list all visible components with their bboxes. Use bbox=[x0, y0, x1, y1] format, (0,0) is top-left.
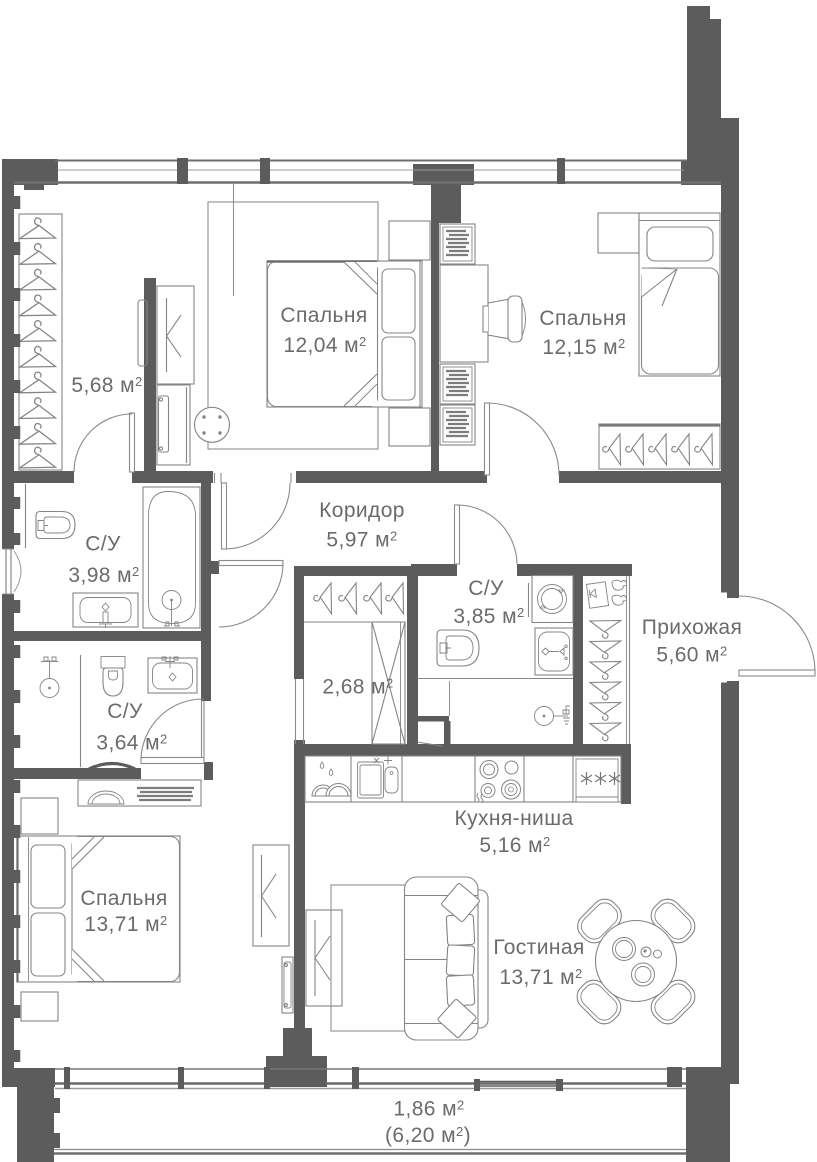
svg-text:Спальня: Спальня bbox=[539, 307, 626, 330]
svg-text:5,60 м2: 5,60 м2 bbox=[656, 644, 727, 667]
svg-text:5,16 м2: 5,16 м2 bbox=[479, 834, 550, 857]
svg-text:С/У: С/У bbox=[468, 577, 504, 600]
svg-text:Прихожая: Прихожая bbox=[642, 616, 743, 639]
svg-text:5,97 м2: 5,97 м2 bbox=[326, 529, 397, 552]
svg-text:2,68 м2: 2,68 м2 bbox=[322, 676, 393, 699]
svg-text:12,04 м2: 12,04 м2 bbox=[283, 334, 366, 357]
svg-text:Гостиная: Гостиная bbox=[493, 936, 584, 959]
svg-text:3,85 м2: 3,85 м2 bbox=[453, 605, 524, 628]
svg-text:5,68 м2: 5,68 м2 bbox=[71, 374, 142, 397]
svg-text:13,71 м2: 13,71 м2 bbox=[84, 913, 167, 936]
svg-text:Коридор: Коридор bbox=[319, 499, 405, 522]
svg-text:С/У: С/У bbox=[85, 533, 121, 556]
svg-text:3,64 м2: 3,64 м2 bbox=[96, 732, 167, 755]
svg-text:С/У: С/У bbox=[107, 700, 143, 723]
svg-text:Кухня-ниша: Кухня-ниша bbox=[454, 807, 573, 830]
svg-text:1,86 м2: 1,86 м2 bbox=[393, 1098, 464, 1121]
svg-text:13,71 м2: 13,71 м2 bbox=[499, 966, 582, 989]
svg-text:Спальня: Спальня bbox=[80, 887, 167, 910]
svg-text:Спальня: Спальня bbox=[280, 304, 367, 327]
svg-text:3,98 м2: 3,98 м2 bbox=[68, 564, 139, 587]
svg-text:12,15 м2: 12,15 м2 bbox=[542, 336, 625, 359]
